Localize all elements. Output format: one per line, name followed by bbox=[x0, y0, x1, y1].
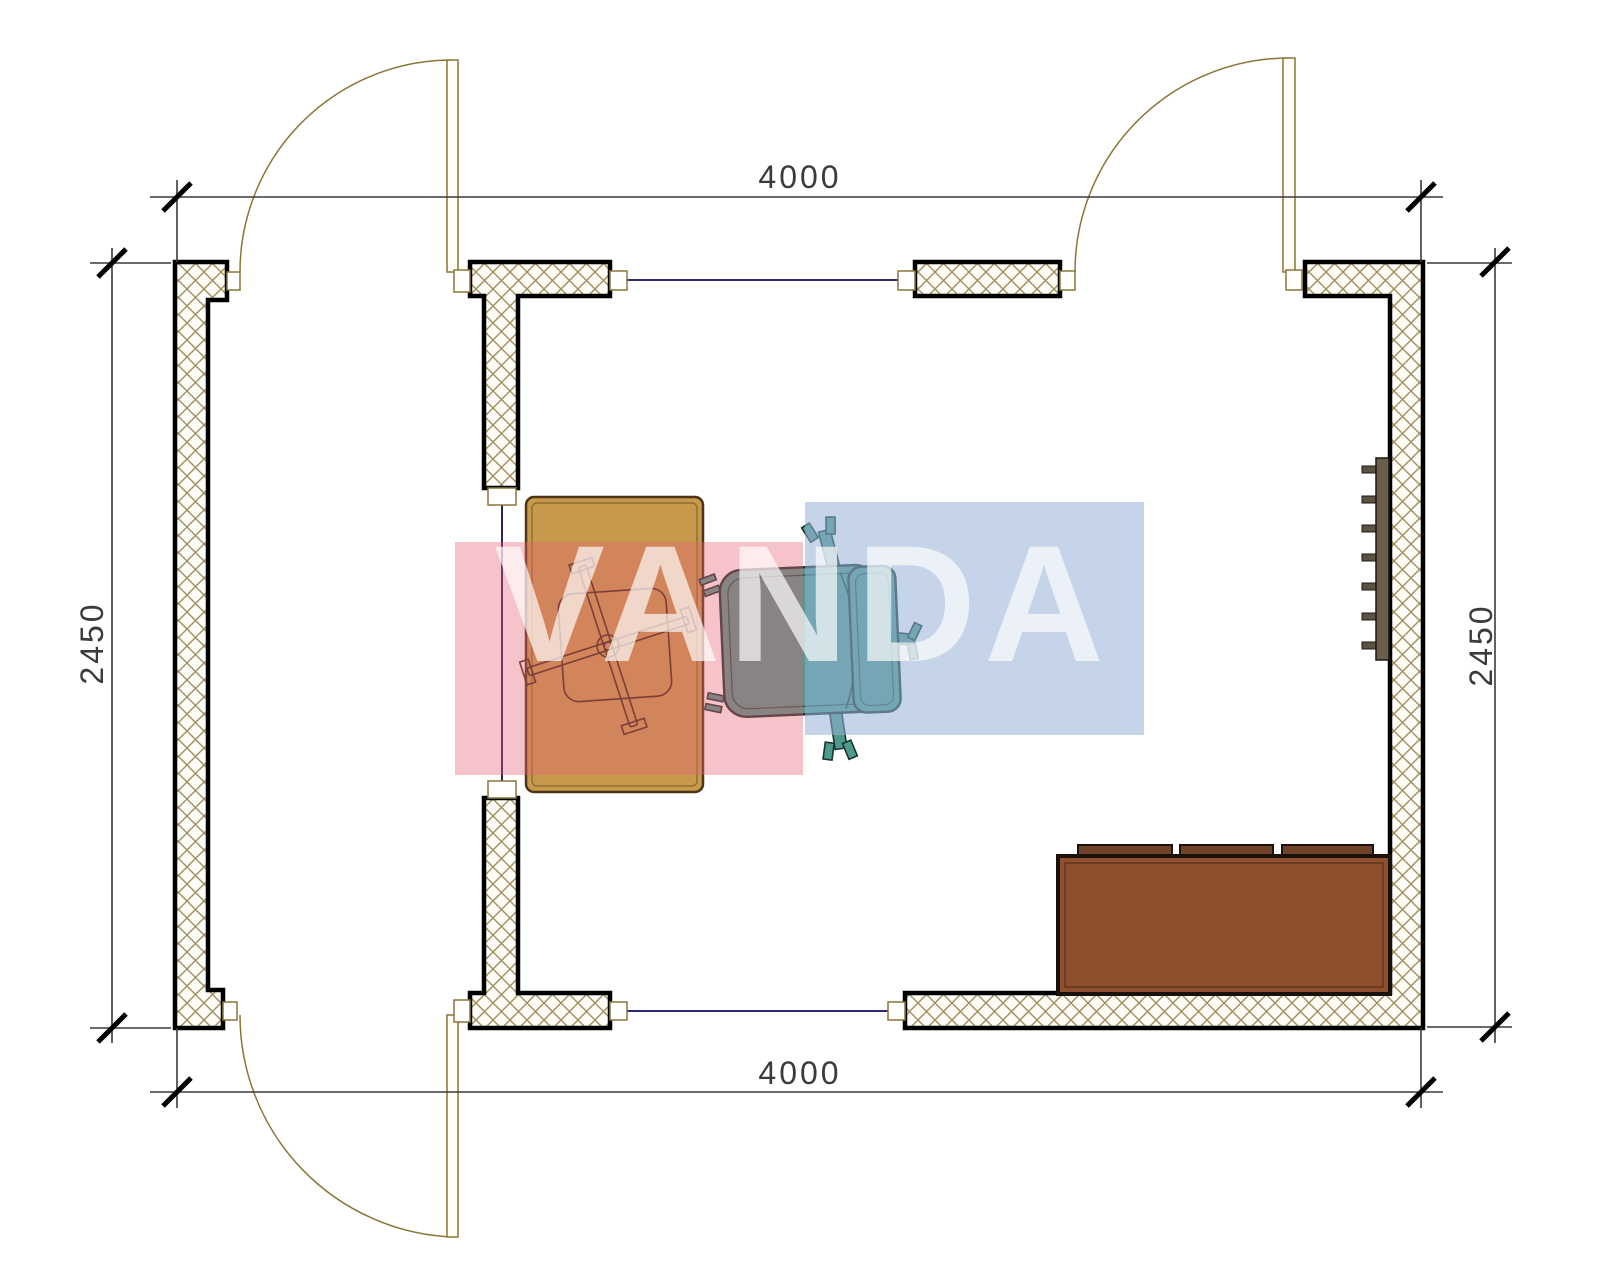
radiator-fin bbox=[1362, 613, 1377, 620]
door-swing-arc bbox=[240, 1015, 452, 1237]
dimension-label-right: 2450 bbox=[1464, 603, 1498, 686]
door-leaf bbox=[447, 60, 458, 272]
jamb bbox=[610, 1002, 627, 1020]
radiator-fin bbox=[1362, 466, 1377, 473]
jamb bbox=[488, 488, 516, 505]
door-bottom bbox=[240, 1000, 470, 1237]
jamb bbox=[223, 1002, 237, 1020]
dimension-label-bottom: 4000 bbox=[758, 1056, 841, 1090]
jamb bbox=[488, 781, 516, 798]
door-swing-arc bbox=[1075, 58, 1289, 272]
radiator-fin bbox=[1362, 496, 1377, 503]
radiator-fin bbox=[1362, 554, 1377, 561]
door-top-left bbox=[240, 60, 470, 292]
radiator-bar bbox=[1376, 458, 1389, 660]
wall-top-middle-pier bbox=[915, 262, 1060, 296]
dimension-label-top: 4000 bbox=[758, 160, 841, 194]
radiator bbox=[1362, 458, 1389, 660]
jamb bbox=[898, 271, 915, 290]
floor-plan-canvas: VANDA 4000 4000 2450 2450 bbox=[0, 0, 1600, 1280]
radiator-fin bbox=[1362, 642, 1377, 649]
jamb bbox=[227, 272, 240, 290]
radiator-fin bbox=[1362, 583, 1377, 590]
jamb bbox=[610, 271, 627, 290]
wall-top-left-pier bbox=[470, 262, 610, 488]
jamb bbox=[888, 1002, 905, 1020]
door-swing-arc bbox=[240, 60, 452, 272]
radiator-fin bbox=[1362, 525, 1377, 532]
sofa bbox=[1058, 845, 1390, 994]
sofa-body bbox=[1058, 856, 1390, 994]
door-leaf bbox=[447, 1015, 458, 1237]
door-hinge bbox=[454, 1000, 470, 1022]
door-top-right bbox=[1075, 58, 1302, 290]
dimension-label-left: 2450 bbox=[75, 601, 109, 684]
jamb bbox=[1060, 271, 1075, 290]
door-hinge bbox=[1286, 270, 1302, 290]
wall-left bbox=[175, 262, 227, 1028]
door-leaf bbox=[1283, 58, 1295, 272]
watermark-text: VANDA bbox=[463, 521, 1143, 689]
door-hinge bbox=[454, 270, 470, 292]
wall-bottom-middle-pier bbox=[470, 798, 610, 1028]
